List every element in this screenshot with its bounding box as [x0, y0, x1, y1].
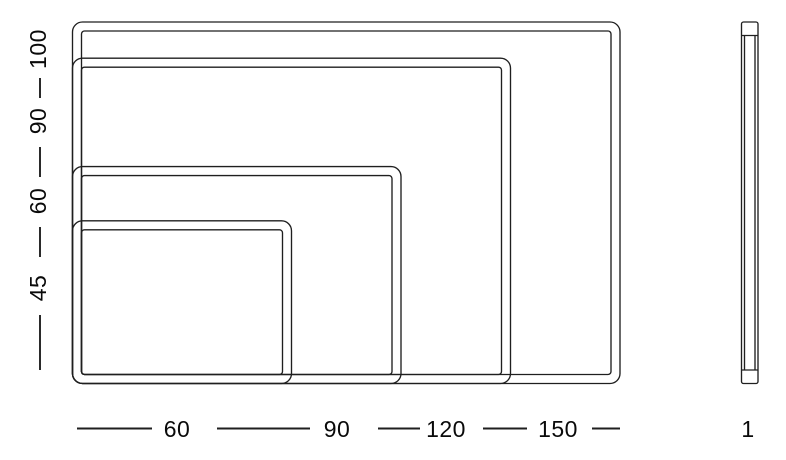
- height-label-100: 100: [25, 29, 51, 69]
- thickness-label: 1: [741, 416, 754, 442]
- width-label-150: 150: [538, 416, 578, 442]
- height-label-90: 90: [25, 108, 51, 135]
- width-label-120: 120: [426, 416, 466, 442]
- width-label-60: 60: [164, 416, 191, 442]
- dimension-diagram: 10090604560901201501: [0, 0, 786, 460]
- height-label-60: 60: [25, 188, 51, 215]
- height-label-45: 45: [25, 275, 51, 302]
- drawing-canvas: 10090604560901201501: [0, 0, 786, 460]
- width-label-90: 90: [324, 416, 351, 442]
